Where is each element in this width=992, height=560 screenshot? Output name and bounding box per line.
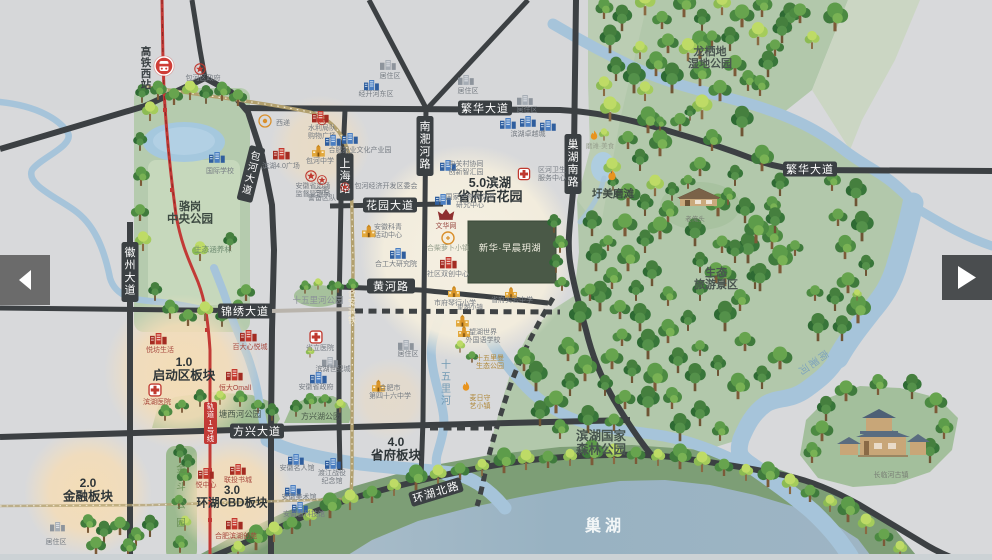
svg-text:国际学校: 国际学校 xyxy=(206,166,234,175)
svg-text:安: 安 xyxy=(348,297,356,307)
svg-text:安徽科青: 安徽科青 xyxy=(374,222,402,231)
svg-text:海: 海 xyxy=(340,169,351,183)
svg-text:合: 合 xyxy=(348,288,356,298)
svg-text:包河中学: 包河中学 xyxy=(306,156,334,165)
svg-text:龙栖地: 龙栖地 xyxy=(693,44,727,58)
svg-text:活动中心: 活动中心 xyxy=(374,230,402,239)
svg-text:十五里河公园: 十五里河公园 xyxy=(292,295,343,305)
svg-text:园: 园 xyxy=(176,518,186,529)
svg-text:居住区: 居住区 xyxy=(380,71,401,80)
svg-text:湿地公园: 湿地公园 xyxy=(688,56,732,70)
svg-text:望湖小镇: 望湖小镇 xyxy=(457,302,484,311)
svg-text:省府实验中学: 省府实验中学 xyxy=(491,295,533,304)
svg-text:启动区板块: 启动区板块 xyxy=(153,368,216,383)
svg-text:区河卫生: 区河卫生 xyxy=(538,165,566,174)
svg-text:花园大道: 花园大道 xyxy=(366,198,414,212)
svg-text:社区双创中心: 社区双创中心 xyxy=(427,269,469,278)
svg-text:省立医院: 省立医院 xyxy=(306,343,334,352)
svg-text:繁华大道: 繁华大道 xyxy=(786,162,834,176)
svg-text:巢湖: 巢湖 xyxy=(584,516,625,535)
svg-text:合肥滨湖创苑: 合肥滨湖创苑 xyxy=(215,531,257,540)
svg-text:居住区: 居住区 xyxy=(398,349,419,358)
svg-text:滨湖4.0广场: 滨湖4.0广场 xyxy=(262,161,300,170)
svg-text:徽: 徽 xyxy=(125,245,136,259)
svg-text:服务中心: 服务中心 xyxy=(538,173,566,182)
svg-text:滨湖国家: 滨湖国家 xyxy=(576,428,627,443)
svg-text:5.0滨湖: 5.0滨湖 xyxy=(469,175,511,190)
svg-text:文华网: 文华网 xyxy=(436,221,457,230)
svg-text:恒大Omall: 恒大Omall xyxy=(219,383,252,392)
svg-text:锦绣大道: 锦绣大道 xyxy=(221,304,269,318)
svg-text:路: 路 xyxy=(420,157,431,170)
svg-text:方兴大道: 方兴大道 xyxy=(233,424,281,438)
svg-text:合肥报业文化产业园: 合肥报业文化产业园 xyxy=(329,145,392,154)
svg-text:路: 路 xyxy=(568,175,579,188)
svg-text:望湖世界: 望湖世界 xyxy=(469,327,497,336)
svg-text:纪念馆: 纪念馆 xyxy=(322,476,343,485)
svg-text:环湖CBD板块: 环湖CBD板块 xyxy=(197,496,268,510)
svg-text:合工大研究院: 合工大研究院 xyxy=(375,259,417,268)
svg-text:艺小镇: 艺小镇 xyxy=(470,401,491,410)
svg-text:西递: 西递 xyxy=(276,118,290,127)
svg-text:河: 河 xyxy=(441,395,451,407)
svg-text:高: 高 xyxy=(348,306,356,316)
svg-text:包河区政府: 包河区政府 xyxy=(186,73,221,82)
svg-text:安徽省政府: 安徽省政府 xyxy=(299,382,334,391)
svg-text:金: 金 xyxy=(176,463,186,475)
svg-text:国家文物局交流: 国家文物局交流 xyxy=(446,192,495,201)
svg-text:安徽省科技馆: 安徽省科技馆 xyxy=(283,509,325,518)
svg-text:十: 十 xyxy=(441,358,451,371)
svg-text:中央公园: 中央公园 xyxy=(167,212,213,226)
svg-text:创新智汇园: 创新智汇园 xyxy=(449,167,484,176)
svg-text:淝: 淝 xyxy=(420,131,431,145)
svg-text:麦日守: 麦日守 xyxy=(470,393,491,402)
svg-text:州: 州 xyxy=(125,259,136,271)
svg-text:居住区: 居住区 xyxy=(458,86,479,95)
svg-text:第四十六中学: 第四十六中学 xyxy=(369,391,411,400)
svg-text:磨滩·美食: 磨滩·美食 xyxy=(586,141,615,150)
svg-text:滨湖医院: 滨湖医院 xyxy=(143,397,171,406)
svg-text:滨湖世纪城: 滨湖世纪城 xyxy=(316,364,351,373)
svg-text:省府板块: 省府板块 xyxy=(370,448,422,463)
svg-text:生态涵养林: 生态涵养林 xyxy=(194,244,232,254)
svg-text:生态公园: 生态公园 xyxy=(476,361,504,370)
svg-text:生态: 生态 xyxy=(705,265,727,279)
svg-text:十五里曼: 十五里曼 xyxy=(476,353,504,362)
svg-text:悦中心: 悦中心 xyxy=(196,480,217,489)
svg-text:联投书城: 联投书城 xyxy=(224,475,252,484)
svg-text:居住区: 居住区 xyxy=(46,537,67,546)
svg-text:长临河古镇: 长临河古镇 xyxy=(874,470,909,479)
svg-text:道: 道 xyxy=(125,282,136,296)
svg-text:包河经济开发区委会: 包河经济开发区委会 xyxy=(355,181,418,190)
svg-text:3.0: 3.0 xyxy=(224,485,240,497)
svg-text:中关村协同: 中关村协同 xyxy=(449,159,484,168)
svg-text:巢: 巢 xyxy=(568,138,579,151)
svg-text:里: 里 xyxy=(441,383,451,395)
svg-text:4.0: 4.0 xyxy=(388,435,405,449)
svg-text:骆岗: 骆岗 xyxy=(179,199,201,213)
svg-text:金融板块: 金融板块 xyxy=(62,489,114,504)
svg-text:塘西河公园: 塘西河公园 xyxy=(219,409,262,419)
svg-text:湖: 湖 xyxy=(568,150,579,163)
svg-text:大: 大 xyxy=(125,270,136,284)
svg-text:外国语学校: 外国语学校 xyxy=(466,335,501,344)
svg-text:合肥: 合肥 xyxy=(315,185,329,194)
svg-text:公: 公 xyxy=(176,500,186,511)
svg-text:安徽名人馆: 安徽名人馆 xyxy=(280,463,315,472)
svg-text:研究中心: 研究中心 xyxy=(456,200,484,209)
svg-text:老俺头: 老俺头 xyxy=(685,214,705,223)
svg-text:安徽美术馆: 安徽美术馆 xyxy=(282,492,317,501)
svg-text:方兴湖公园: 方兴湖公园 xyxy=(301,411,341,421)
svg-text:居住区: 居住区 xyxy=(517,105,538,114)
svg-text:渡江战役: 渡江战役 xyxy=(318,468,346,477)
svg-text:森林公园: 森林公园 xyxy=(576,442,626,457)
svg-text:2.0: 2.0 xyxy=(80,476,97,490)
svg-text:铁: 铁 xyxy=(348,315,356,325)
svg-text:圩美磨滩: 圩美磨滩 xyxy=(592,187,634,200)
svg-text:河: 河 xyxy=(420,145,431,158)
svg-text:南: 南 xyxy=(420,120,431,133)
svg-text:黄河路: 黄河路 xyxy=(373,279,409,293)
svg-text:警备区队: 警备区队 xyxy=(308,193,336,202)
svg-text:水利局队: 水利局队 xyxy=(308,123,336,132)
svg-text:繁华大道: 繁华大道 xyxy=(461,101,509,115)
svg-text:站: 站 xyxy=(141,78,152,91)
svg-text:百大心悦城: 百大心悦城 xyxy=(233,342,268,351)
svg-text:南: 南 xyxy=(568,163,579,176)
svg-text:悦坊生活: 悦坊生活 xyxy=(146,345,174,354)
svg-text:五: 五 xyxy=(441,372,451,383)
svg-text:上: 上 xyxy=(340,157,351,170)
svg-text:旅游景区: 旅游景区 xyxy=(694,277,738,291)
svg-text:经开河东区: 经开河东区 xyxy=(359,89,394,98)
svg-text:1.0: 1.0 xyxy=(176,355,193,369)
svg-text:合柴萝卜小镇: 合柴萝卜小镇 xyxy=(427,243,469,252)
svg-text:线: 线 xyxy=(207,433,215,443)
svg-text:滨湖卓越城: 滨湖卓越城 xyxy=(511,129,546,138)
svg-text:新华·早晨玥湖: 新华·早晨玥湖 xyxy=(479,242,541,253)
svg-text:斗: 斗 xyxy=(176,482,186,493)
svg-text:合肥市: 合肥市 xyxy=(380,383,401,392)
